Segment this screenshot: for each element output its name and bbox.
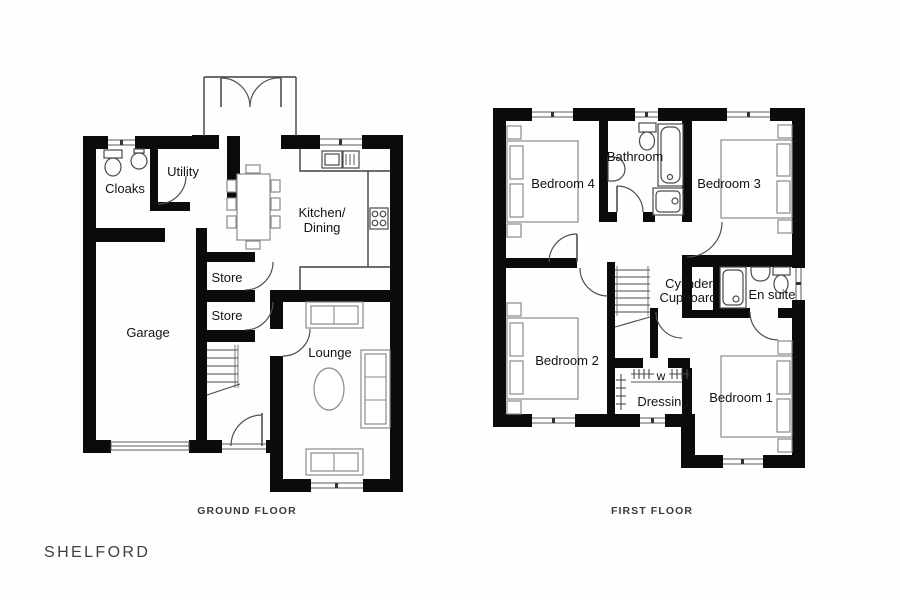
sink-icon: [322, 151, 359, 168]
window: [727, 112, 770, 117]
sofa-icon: [306, 449, 363, 475]
door-arc: [656, 312, 682, 338]
room-label-bedroom3: Bedroom 3: [697, 176, 761, 191]
room-label-kitchen-line1: Kitchen/: [299, 205, 346, 220]
room-label-utility: Utility: [167, 164, 199, 179]
plan-title: SHELFORD: [44, 544, 150, 561]
toilet-icon: [104, 150, 122, 176]
window: [532, 418, 575, 423]
window: [108, 140, 135, 145]
door-arc: [158, 176, 186, 204]
hob-icon: [370, 208, 388, 229]
ground-floor-plan: Cloaks Utility Kitchen/ Dining Store Sto…: [83, 77, 403, 517]
window: [635, 112, 658, 117]
door-arc: [221, 78, 250, 107]
door-arc: [245, 262, 273, 290]
window: [311, 483, 363, 488]
room-label-bedroom1: Bedroom 1: [709, 390, 773, 405]
room-label-garage: Garage: [126, 325, 169, 340]
ground-floor-caption: GROUND FLOOR: [197, 505, 297, 517]
room-label-bedroom4: Bedroom 4: [531, 176, 595, 191]
door-arc: [231, 415, 262, 446]
room-label-lounge: Lounge: [308, 345, 351, 360]
door-arc: [283, 329, 310, 356]
room-label-wardrobe: w: [656, 369, 666, 383]
room-label-cloaks: Cloaks: [105, 181, 145, 196]
first-floor-caption: FIRST FLOOR: [611, 505, 693, 517]
window: [640, 418, 665, 423]
room-label-kitchen-line2: Dining: [304, 220, 341, 235]
basin-icon: [131, 149, 147, 169]
room-label-store-top: Store: [211, 270, 242, 285]
first-floor-plan: Bedroom 4 Bathroom Bedroom 3 Cylinder Cu…: [493, 108, 805, 517]
shower-icon: [720, 267, 746, 308]
toilet-icon: [639, 123, 656, 150]
room-label-cylinder-line1: Cylinder: [665, 276, 713, 291]
window: [723, 459, 763, 464]
window: [796, 268, 801, 300]
shower-icon: [653, 188, 683, 215]
garage-door: [111, 442, 189, 450]
door-arc: [245, 302, 273, 330]
entrance-bay: [204, 77, 296, 136]
floorplan-page: Cloaks Utility Kitchen/ Dining Store Sto…: [0, 0, 900, 600]
room-label-bedroom2: Bedroom 2: [535, 353, 599, 368]
door-arc: [580, 268, 608, 296]
door-arc: [617, 186, 643, 212]
window: [532, 112, 573, 117]
door-arc: [750, 312, 778, 340]
door-arc: [549, 234, 577, 262]
window: [320, 139, 362, 145]
sofa-icon: [361, 350, 390, 428]
room-label-ensuite: En suite: [749, 287, 796, 302]
stairs-icon: [207, 345, 240, 395]
room-label-dressing: Dressing: [637, 394, 688, 409]
front-door: [222, 413, 266, 449]
door-arc: [250, 78, 281, 107]
sofa-icon: [306, 302, 363, 328]
coffee-table-icon: [314, 368, 344, 410]
room-label-cylinder-line2: Cupboard: [659, 290, 716, 305]
room-label-bathroom: Bathroom: [607, 149, 663, 164]
door-arc: [687, 222, 722, 257]
basin-icon: [751, 267, 770, 281]
floorplan-canvas: Cloaks Utility Kitchen/ Dining Store Sto…: [0, 0, 900, 600]
room-label-store-bottom: Store: [211, 308, 242, 323]
stairs-icon: [615, 266, 650, 327]
